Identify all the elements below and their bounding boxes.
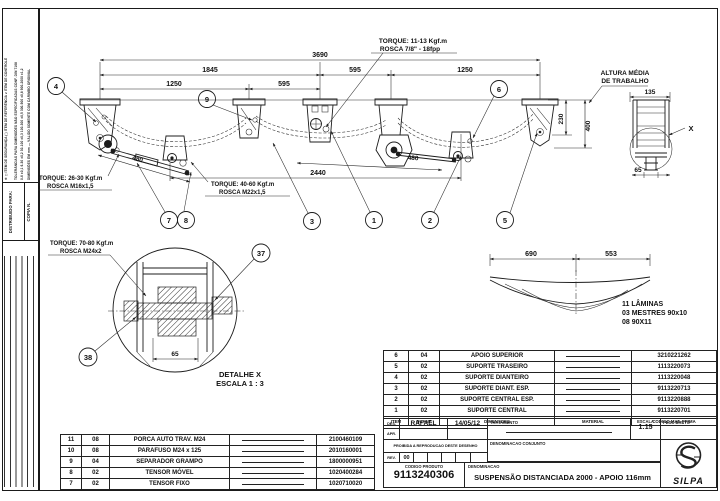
lower-dimensions: 2440 480 480 xyxy=(98,134,461,182)
table-row: 3 02 SUPORTE DIANT. ESP. 9113220713 xyxy=(384,383,716,394)
cell-code: 1113220073 xyxy=(631,362,716,372)
spring-dim-right: 553 xyxy=(605,251,617,258)
table-row: 9 04 SEPARADOR GRAMPO 1800000951 xyxy=(61,456,374,467)
height-dimensions: 230 400 xyxy=(548,100,592,148)
table-row: 6 04 APOIO SUPERIOR 3210221262 xyxy=(384,351,716,361)
proibida-note: PROIBIDA A REPRODUCAO DESTE DESENHO xyxy=(383,439,488,453)
dim-axles: 2440 xyxy=(310,170,326,177)
detail-x-view: 65 TORQUE: 70-80 Kgf.m ROSCA M24x2 37 38… xyxy=(48,241,270,388)
cell-material-dash xyxy=(554,406,631,416)
table-row: 1 02 SUPORTE CENTRAL 9113220701 xyxy=(384,405,716,416)
spring-note-1: 11 LÂMINAS xyxy=(622,299,664,308)
cell-code: 1020710020 xyxy=(316,479,374,489)
peso-box: PESO BRUTO xyxy=(660,418,717,440)
altura-line2: DE TRABALHO xyxy=(601,78,648,85)
cell-qty: 02 xyxy=(408,362,439,372)
escala-value: 1:15 xyxy=(631,424,660,431)
front-equalizer xyxy=(163,136,187,166)
cell-qty: 02 xyxy=(408,373,439,383)
cell-item: 3 xyxy=(384,384,408,394)
denominacao-label: DENOMINACAO xyxy=(468,464,499,469)
cell-qty: 08 xyxy=(81,435,109,445)
cell-code: 1020400284 xyxy=(316,468,374,478)
dim-span-mid: 595 xyxy=(349,67,361,74)
dim-w135: 135 xyxy=(645,89,656,96)
title-block: DES. RAFAEL 14/05/12 APR. TRATAMENTO ESC… xyxy=(383,418,717,488)
cell-item: 5 xyxy=(384,362,408,372)
cell-qty: 02 xyxy=(81,479,109,489)
leaf-spring-view: 690 553 11 LÂMINAS 03 MESTRES 90x10 08 9… xyxy=(490,251,687,326)
detail-torque-line2: ROSCA M24x2 xyxy=(60,249,102,255)
table-row: 7 02 TENSOR FIXO 1020710020 xyxy=(61,478,374,489)
torque-top-line2: ROSCA 7/8" - 18fpp xyxy=(380,46,440,53)
cell-item: 7 xyxy=(61,479,81,489)
spring-dim-left: 690 xyxy=(525,251,537,258)
cell-material-dash xyxy=(554,384,631,394)
cell-material-dash xyxy=(229,468,316,478)
cell-item: 8 xyxy=(61,468,81,478)
dim-tensor-front: 480 xyxy=(131,155,144,165)
cell-material-dash xyxy=(229,457,316,467)
table-row: 8 02 TENSOR MÓVEL 1020400284 xyxy=(61,467,374,478)
dim-sub-mid: 595 xyxy=(278,81,290,88)
cell-material-dash xyxy=(229,479,316,489)
table-row: 11 08 PORCA AUTO TRAV. M24 2100460109 xyxy=(61,435,374,445)
balloon-6: 6 xyxy=(497,85,501,94)
cell-material-dash xyxy=(229,435,316,445)
parts-table-left: 11 08 PORCA AUTO TRAV. M24 2100460109 10… xyxy=(60,434,375,490)
balloon-2: 2 xyxy=(428,216,432,225)
tensor-rods xyxy=(111,149,457,176)
balloon-7: 7 xyxy=(167,216,171,225)
dim-w65-side: 65 xyxy=(634,167,642,174)
cell-material-dash xyxy=(554,351,631,361)
cell-qty: 02 xyxy=(408,395,439,405)
cell-qty: 02 xyxy=(408,406,439,416)
dim-tensor-rear: 480 xyxy=(407,155,419,163)
balloon-38: 38 xyxy=(84,353,92,362)
cell-code: 9113220713 xyxy=(631,384,716,394)
altura-line1: ALTURA MÉDIA xyxy=(601,68,650,77)
dim-h400: 400 xyxy=(585,120,592,131)
front-axle-hub xyxy=(94,115,120,153)
denominacao-value: SUSPENSÃO DISTANCIADA 2000 - APOIO 116mm xyxy=(465,473,660,482)
dim-span-front: 1845 xyxy=(202,67,218,74)
spring-note-2: 03 MESTRES 90x10 xyxy=(622,310,687,317)
peso-label: PESO BRUTO xyxy=(663,420,690,425)
torque-top-line1: TORQUE: 11-13 Kgf.m xyxy=(379,38,447,45)
table-row: 5 02 SUPORTE TRASEIRO 1113220073 xyxy=(384,361,716,372)
dim-h230: 230 xyxy=(558,113,565,124)
cell-code: 2010160001 xyxy=(316,446,374,456)
balloon-3: 3 xyxy=(310,217,314,226)
cell-material-dash xyxy=(554,373,631,383)
cell-qty: 02 xyxy=(408,384,439,394)
cell-qty: 08 xyxy=(81,446,109,456)
cell-material-dash xyxy=(554,395,631,405)
escala-box: ESCALA 1:15 xyxy=(630,418,661,440)
cell-item: 1 xyxy=(384,406,408,416)
support-diant-esp xyxy=(233,99,265,138)
tratamento-box: TRATAMENTO xyxy=(487,418,631,440)
cell-desc: SEPARADOR GRAMPO xyxy=(109,457,229,467)
drawing-sheet: ⊕ ◻ ITEM DE SEGURANÇA ( ) ITEM DE REFERÊ… xyxy=(0,0,720,501)
cell-code: 1800000951 xyxy=(316,457,374,467)
cell-material-dash xyxy=(229,446,316,456)
cell-code: 3210221262 xyxy=(631,351,716,361)
torque-note-front: TORQUE: 26-30 Kgf.m ROSCA M16x1,5 xyxy=(38,154,119,190)
altura-note: ALTURA MÉDIA DE TRABALHO xyxy=(589,68,650,103)
torque-note-top: TORQUE: 11-13 Kgf.m ROSCA 7/8" - 18fpp xyxy=(326,38,457,127)
cell-item: 9 xyxy=(61,457,81,467)
cell-item: 10 xyxy=(61,446,81,456)
cell-code: 1113220048 xyxy=(631,373,716,383)
cell-desc: APOIO SUPERIOR xyxy=(439,351,554,361)
cell-qty: 02 xyxy=(81,468,109,478)
x-view-label: X xyxy=(688,124,693,133)
balloons: 4 9 6 7 8 3 1 2 5 xyxy=(48,78,538,230)
torque-note-mid: TORQUE: 40-60 Kgf.m ROSCA M22x1,5 xyxy=(191,162,290,196)
cell-desc: SUPORTE DIANT. ESP. xyxy=(439,384,554,394)
codigo-produto-value: 9113240306 xyxy=(384,469,464,481)
torque-front-line1: TORQUE: 26-30 Kgf.m xyxy=(39,176,102,182)
cell-desc: TENSOR MÓVEL xyxy=(109,468,229,478)
top-dimensions: 3690 1845 595 1250 1250 595 xyxy=(100,52,540,99)
cell-desc: SUPORTE DIANTEIRO xyxy=(439,373,554,383)
cell-item: 6 xyxy=(384,351,408,361)
codigo-produto-box: CODIGO PRODUTO 9113240306 xyxy=(383,462,465,488)
spring-note-3: 08 90X11 xyxy=(622,319,652,326)
dim-sub-front: 1250 xyxy=(166,81,182,88)
torque-mid-line2: ROSCA M22x1,5 xyxy=(219,190,266,196)
cell-desc: PARAFUSO M24 x 125 xyxy=(109,446,229,456)
detail-dim-65: 65 xyxy=(171,351,179,358)
cell-desc: PORCA AUTO TRAV. M24 xyxy=(109,435,229,445)
torque-mid-line1: TORQUE: 40-60 Kgf.m xyxy=(211,182,274,188)
cell-desc: SUPORTE CENTRAL xyxy=(439,406,554,416)
logo-text: SILPA xyxy=(661,476,716,486)
balloon-1: 1 xyxy=(372,216,376,225)
center-mount xyxy=(303,99,337,142)
torque-front-line2: ROSCA M16x1,5 xyxy=(47,184,94,190)
cell-item: 11 xyxy=(61,435,81,445)
balloon-8: 8 xyxy=(184,216,188,225)
front-hanger xyxy=(80,99,120,150)
cell-code: 2100460109 xyxy=(316,435,374,445)
balloon-5: 5 xyxy=(503,216,507,225)
table-row: 4 02 SUPORTE DIANTEIRO 1113220048 xyxy=(384,372,716,383)
denominacao-box: DENOMINACAO SUSPENSÃO DISTANCIADA 2000 -… xyxy=(464,462,661,488)
cell-item: 2 xyxy=(384,395,408,405)
cell-desc: SUPORTE TRASEIRO xyxy=(439,362,554,372)
tratamento-label: TRATAMENTO xyxy=(490,420,518,425)
parts-table-right: 6 04 APOIO SUPERIOR 3210221262 5 02 SUPO… xyxy=(383,350,717,426)
dim-span-rear: 1250 xyxy=(457,67,473,74)
cell-code: 9113220701 xyxy=(631,406,716,416)
detail-title: DETALHE X xyxy=(219,370,261,379)
rear-hanger xyxy=(522,99,558,146)
denominacao-conjunto-label: DENOMINACAO CONJUNTO xyxy=(490,441,545,446)
balloon-4: 4 xyxy=(54,82,59,91)
cell-desc: SUPORTE CENTRAL ESP. xyxy=(439,395,554,405)
table-row: 10 08 PARAFUSO M24 x 125 2010160001 xyxy=(61,445,374,456)
cell-qty: 04 xyxy=(81,457,109,467)
cell-material-dash xyxy=(554,362,631,372)
denominacao-conjunto-box: DENOMINACAO CONJUNTO xyxy=(487,439,661,462)
dim-total: 3690 xyxy=(312,52,328,59)
table-row: 2 02 SUPORTE CENTRAL ESP. 9113220888 xyxy=(384,394,716,405)
side-view: 135 65 X xyxy=(630,89,694,178)
cell-desc: TENSOR FIXO xyxy=(109,479,229,489)
balloon-37: 37 xyxy=(257,249,265,258)
detail-scale: ESCALA 1 : 3 xyxy=(216,379,264,388)
balloon-9: 9 xyxy=(205,95,209,104)
detail-torque-line1: TORQUE: 70-80 Kgf.m xyxy=(50,241,113,247)
logo-box: SILPA xyxy=(660,439,717,488)
tratamento-dash xyxy=(506,432,612,433)
cell-qty: 04 xyxy=(408,351,439,361)
cell-item: 4 xyxy=(384,373,408,383)
cell-code: 9113220888 xyxy=(631,395,716,405)
